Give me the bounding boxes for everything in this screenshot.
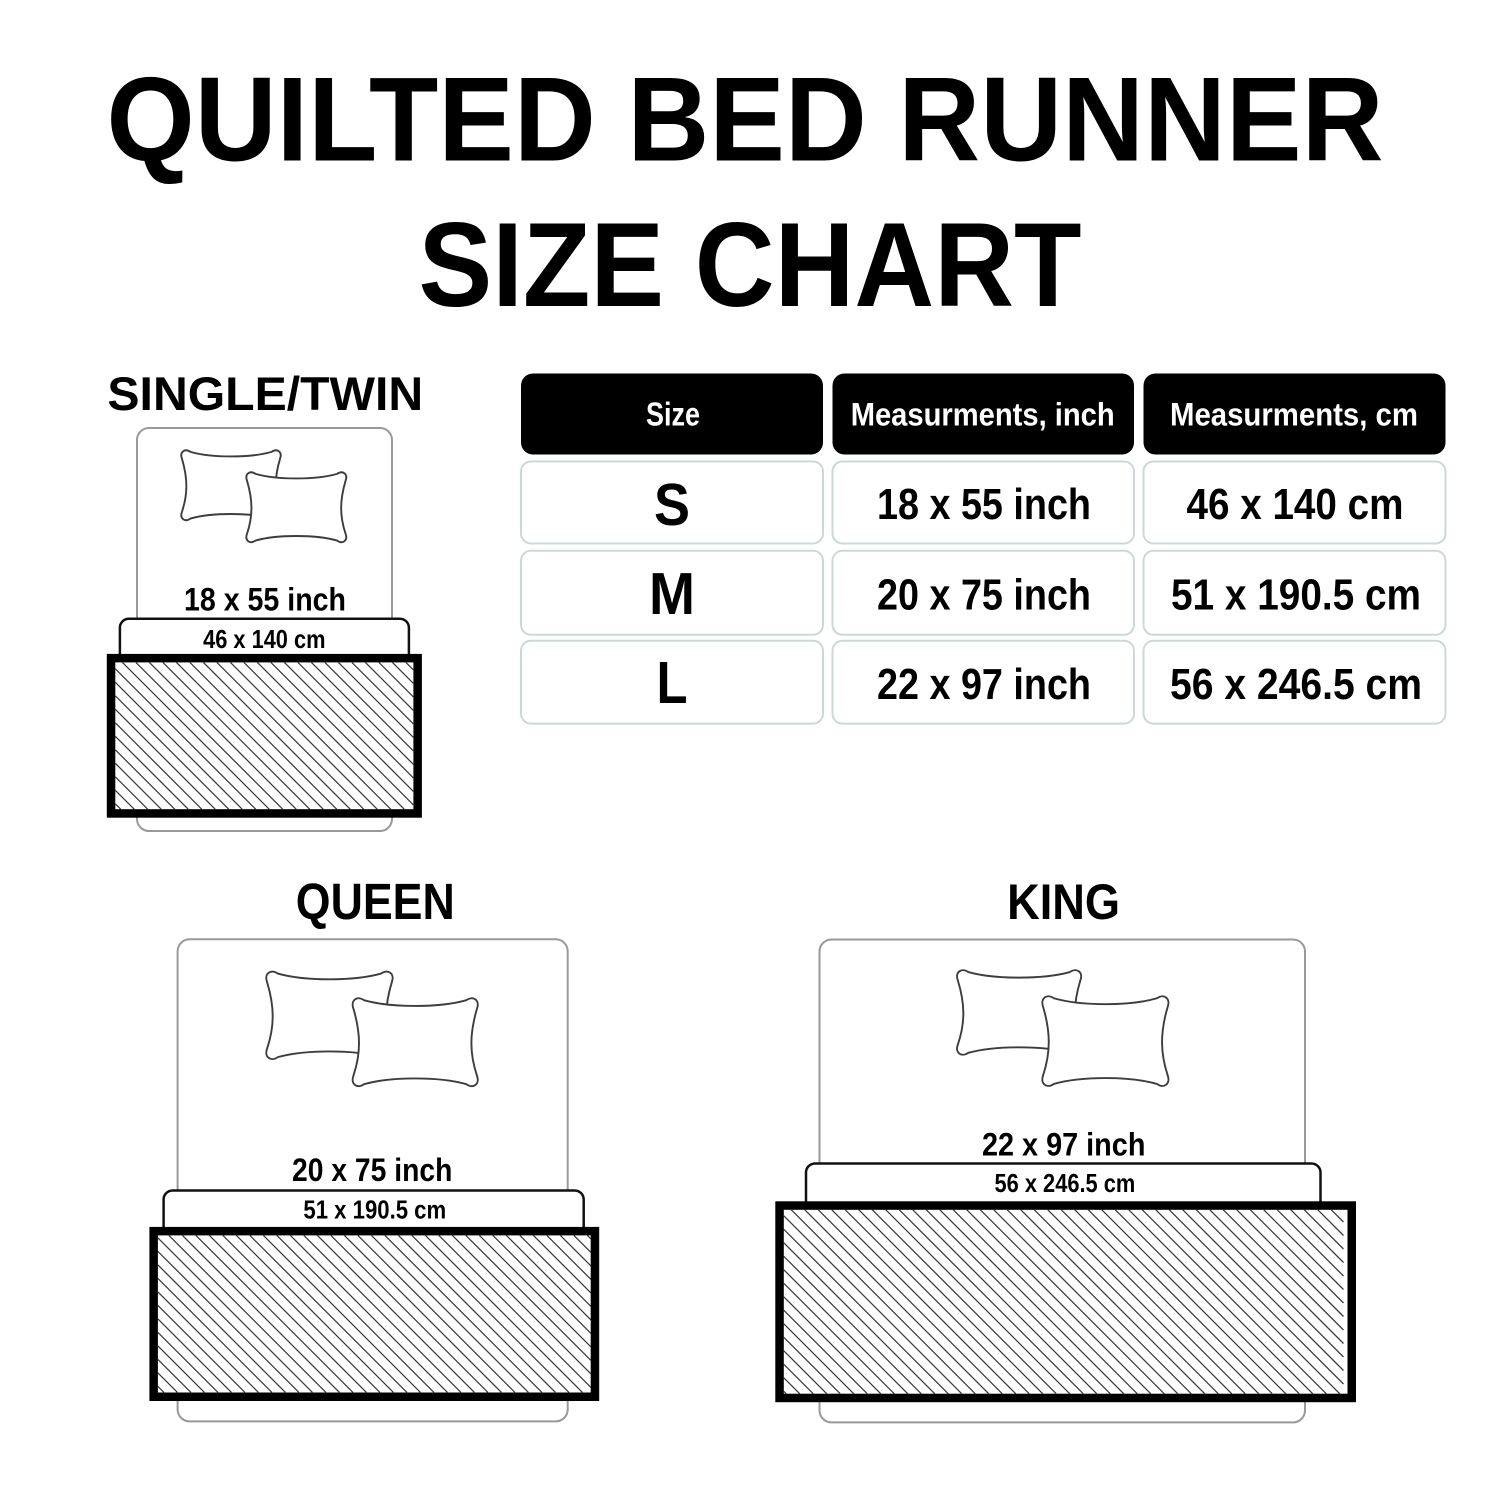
svg-text:22 x 97 inch: 22 x 97 inch xyxy=(982,1127,1146,1163)
svg-text:46 x 140 cm: 46 x 140 cm xyxy=(1187,481,1404,529)
svg-text:QUILTED BED RUNNER: QUILTED BED RUNNER xyxy=(107,53,1384,187)
svg-text:Measurments, cm: Measurments, cm xyxy=(1170,397,1418,433)
svg-text:46 x 140 cm: 46 x 140 cm xyxy=(203,624,325,654)
svg-text:56 x 246.5 cm: 56 x 246.5 cm xyxy=(995,1168,1136,1198)
svg-text:L: L xyxy=(657,650,688,716)
svg-text:Size: Size xyxy=(646,396,700,433)
svg-text:QUEEN: QUEEN xyxy=(296,873,455,930)
svg-text:51 x 190.5 cm: 51 x 190.5 cm xyxy=(1171,572,1421,620)
svg-text:20 x 75 inch: 20 x 75 inch xyxy=(877,572,1091,620)
svg-text:M: M xyxy=(649,561,695,627)
svg-text:18 x 55 inch: 18 x 55 inch xyxy=(184,581,346,617)
svg-text:56 x 246.5 cm: 56 x 246.5 cm xyxy=(1170,661,1422,709)
svg-text:SIZE CHART: SIZE CHART xyxy=(419,198,1082,332)
svg-text:SINGLE/TWIN: SINGLE/TWIN xyxy=(107,367,423,420)
svg-text:51 x 190.5 cm: 51 x 190.5 cm xyxy=(303,1194,446,1224)
svg-text:20 x 75 inch: 20 x 75 inch xyxy=(292,1152,452,1188)
svg-text:18 x 55 inch: 18 x 55 inch xyxy=(877,481,1091,529)
svg-text:KING: KING xyxy=(1007,874,1120,930)
svg-text:Measurments, inch: Measurments, inch xyxy=(851,397,1115,433)
svg-text:22 x 97 inch: 22 x 97 inch xyxy=(877,661,1091,709)
svg-text:S: S xyxy=(654,472,690,538)
